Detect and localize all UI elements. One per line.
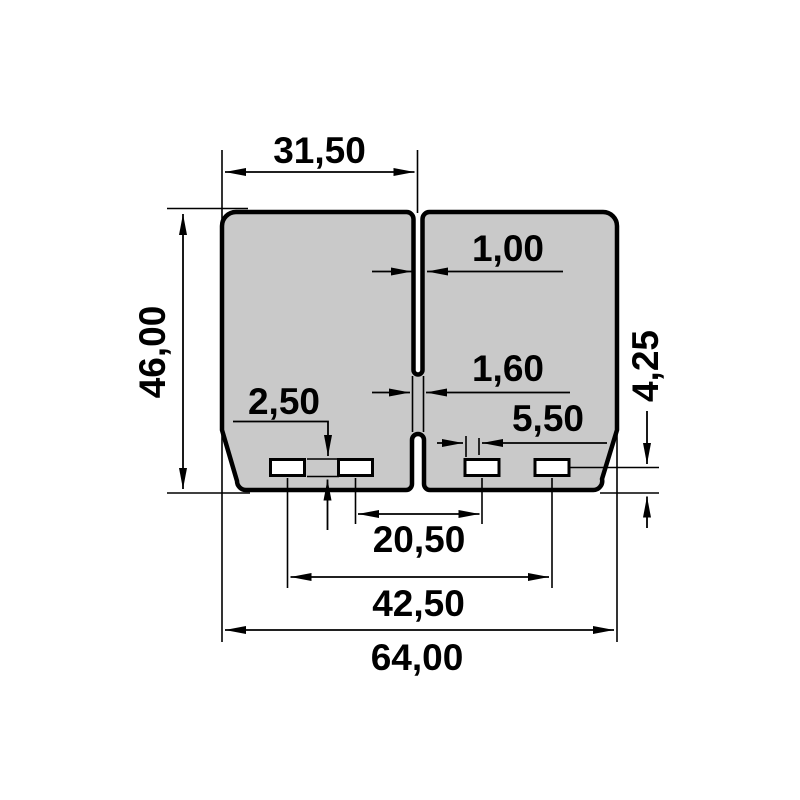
mounting-slot-4 <box>535 460 569 476</box>
dimension-label: 64,00 <box>371 637 464 678</box>
dimension-label: 5,50 <box>512 398 584 439</box>
dimension-label: 42,50 <box>372 583 465 624</box>
dimension-label: 31,50 <box>273 130 366 171</box>
mounting-slot-2 <box>339 460 373 476</box>
reed-petal-dimension-drawing: 31,50 46,00 1,00 1,60 2,50 5,50 <box>0 0 800 800</box>
dimension-label: 46,00 <box>132 306 173 399</box>
technical-drawing-page: 31,50 46,00 1,00 1,60 2,50 5,50 <box>0 0 800 800</box>
dimension-label: 20,50 <box>373 519 466 560</box>
dimension-label: 1,60 <box>472 348 544 389</box>
mounting-slot-1 <box>271 460 305 476</box>
dimension-label: 2,50 <box>248 381 320 422</box>
reed-petal-plate <box>222 212 617 490</box>
dimension-label: 4,25 <box>625 330 666 402</box>
mounting-slot-3 <box>465 460 499 476</box>
dimension-label: 1,00 <box>472 228 544 269</box>
